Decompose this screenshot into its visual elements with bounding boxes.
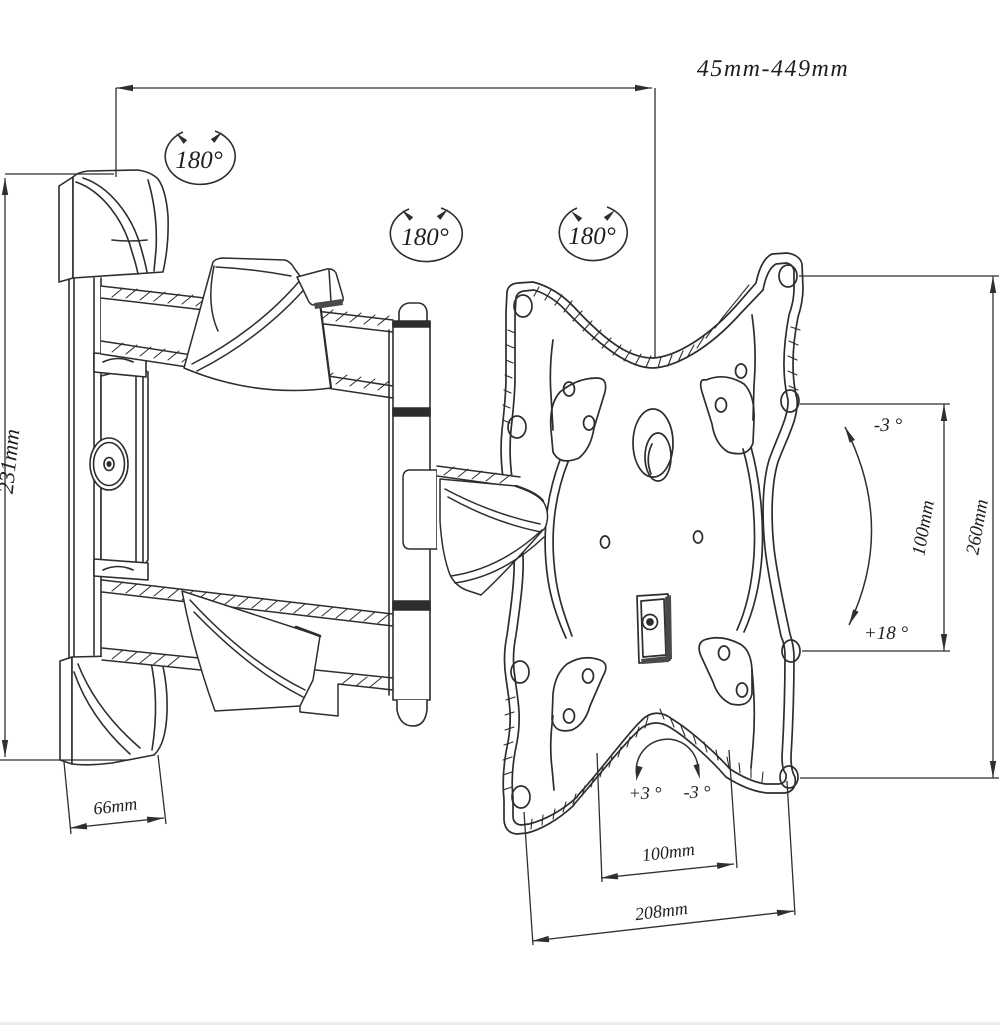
svg-text:-3 °: -3 ° [684,782,711,802]
svg-text:+18 °: +18 ° [864,623,909,644]
svg-text:180°: 180° [401,224,449,251]
svg-text:180°: 180° [175,147,223,174]
svg-text:-3 °: -3 ° [874,415,903,436]
svg-text:180°: 180° [568,223,616,250]
svg-text:+3 °: +3 ° [629,783,662,803]
svg-text:45mm-449mm: 45mm-449mm [697,56,849,82]
